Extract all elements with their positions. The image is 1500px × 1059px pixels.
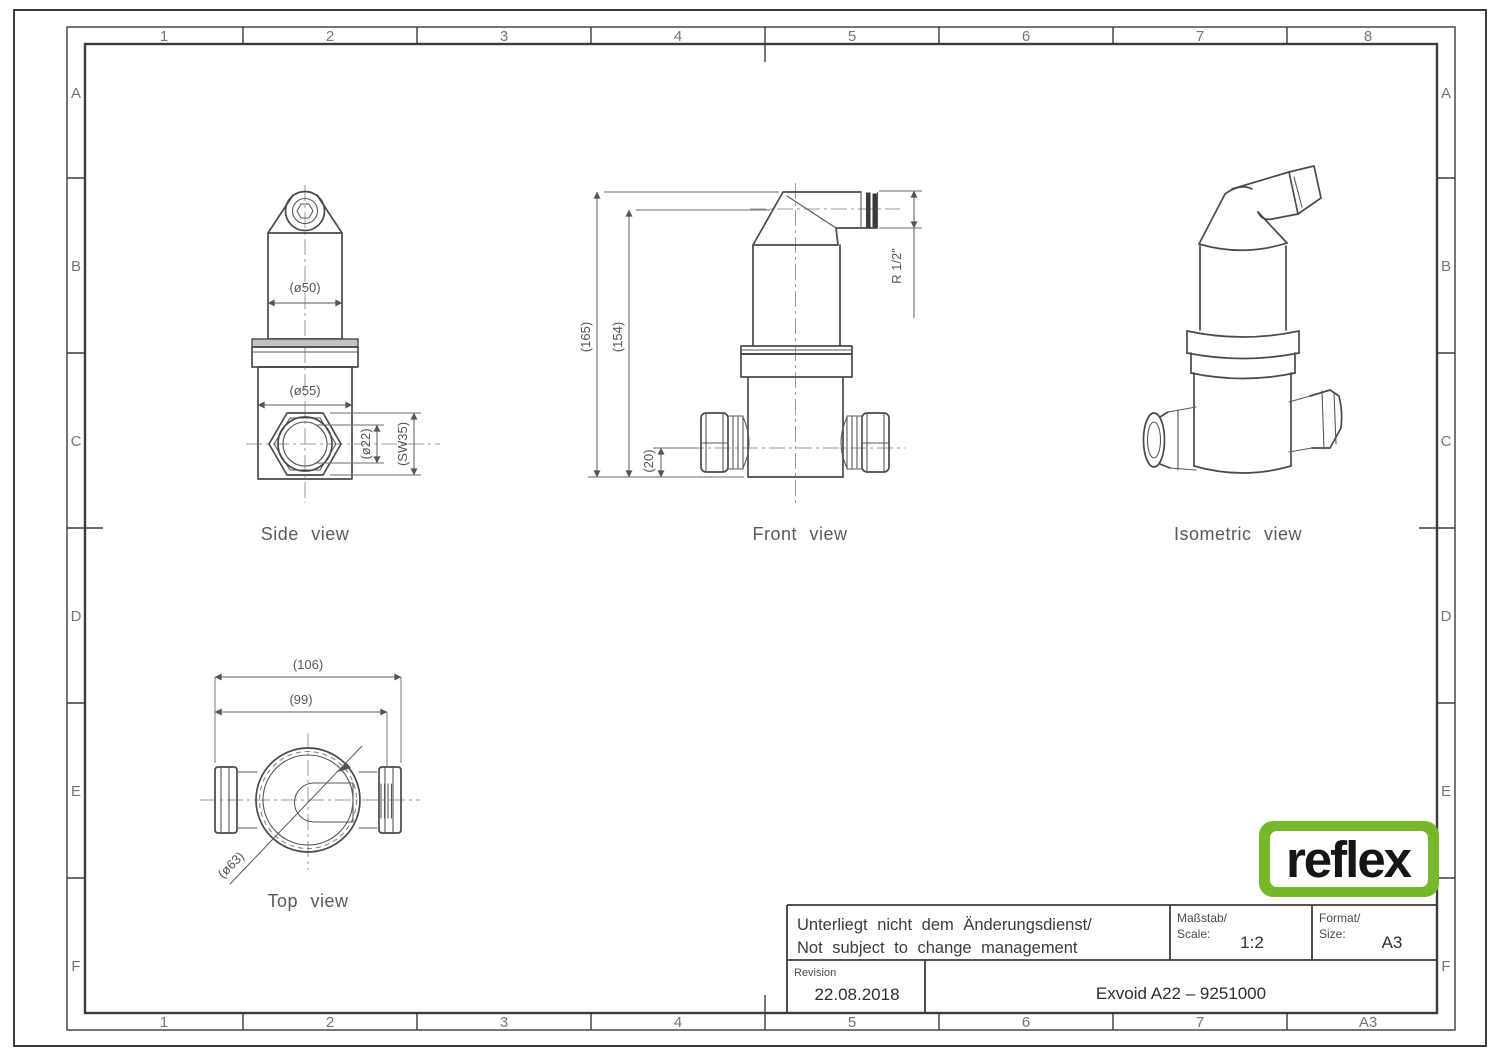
engineering-drawing: 1 2 3 4 5 6 7 8 1 2 3 4 5 6 7 A3 A B C D… [0, 0, 1500, 1059]
isometric-view-caption: Isometric view [1174, 524, 1303, 544]
grid-row-label: E [71, 783, 81, 800]
grid-col-label: 7 [1196, 1014, 1204, 1031]
top-view-caption: Top view [267, 891, 349, 911]
scale-value: 1:2 [1240, 933, 1264, 952]
scale-label-de: Maßstab/ [1177, 911, 1228, 925]
grid-row-label: D [71, 608, 82, 625]
front-view-caption: Front view [752, 524, 848, 544]
dim-label-99: (99) [289, 692, 312, 707]
grid-row-label: F [1441, 958, 1450, 975]
grid-col-label: 3 [500, 1014, 508, 1031]
grid-col-label: 4 [674, 28, 682, 45]
format-label-de: Format/ [1319, 911, 1361, 925]
grid-col-label: 8 [1364, 28, 1372, 45]
dim-label-r-half-inch: R 1/2" [889, 248, 904, 284]
title-block-note-en: Not subject to change management [797, 939, 1078, 957]
format-label-en: Size: [1319, 927, 1346, 941]
grid-row-label: B [1441, 258, 1451, 275]
reflex-logo: reflex [1259, 821, 1439, 897]
dim-label-20: (20) [641, 449, 656, 472]
dim-label-154: (154) [610, 322, 625, 352]
side-view-caption: Side view [261, 524, 350, 544]
grid-col-label: 2 [326, 1014, 334, 1031]
grid-row-label: E [1441, 783, 1451, 800]
revision-label: Revision [794, 967, 836, 979]
format-value: A3 [1382, 933, 1403, 952]
grid-col-label: 7 [1196, 28, 1204, 45]
grid-col-label: 6 [1022, 1014, 1030, 1031]
grid-row-label: C [1441, 433, 1452, 450]
dim-label-d22: (ø22) [358, 428, 373, 459]
logo-wordmark: reflex [1286, 831, 1412, 888]
grid-row-label: A [71, 85, 81, 102]
dim-label-sw35: (SW35) [395, 422, 410, 466]
isometric-view-drawing: Isometric view [1144, 166, 1342, 544]
grid-col-label: 4 [674, 1014, 682, 1031]
side-view-drawing: (ø50) (ø55) (ø22) (SW35) Side view [246, 185, 440, 544]
top-view-drawing: (106) (99) (ø63) Top view [200, 657, 420, 911]
grid-row-label: D [1441, 608, 1452, 625]
grid-col-label: 1 [160, 1014, 168, 1031]
dim-label-106: (106) [293, 657, 323, 672]
grid-col-label: 6 [1022, 28, 1030, 45]
grid-row-label: F [71, 958, 80, 975]
grid-row-label: A [1441, 85, 1451, 102]
scale-label-en: Scale: [1177, 927, 1210, 941]
grid-row-label: B [71, 258, 81, 275]
part-title: Exvoid A22 – 9251000 [1096, 984, 1266, 1003]
grid-col-label: 5 [848, 28, 856, 45]
dim-label-d50: (ø50) [289, 280, 320, 295]
grid-row-label: C [71, 433, 82, 450]
grid-col-label: 3 [500, 28, 508, 45]
front-view-drawing: (165) (154) (20) R 1/2" Front view [578, 183, 922, 544]
grid-col-label: 1 [160, 28, 168, 45]
title-block: Unterliegt nicht dem Änderungsdienst/ No… [787, 905, 1437, 1013]
dim-label-165: (165) [578, 322, 593, 352]
grid-col-label: A3 [1359, 1014, 1377, 1031]
title-block-note-de: Unterliegt nicht dem Änderungsdienst/ [797, 916, 1092, 934]
dim-label-d55: (ø55) [289, 383, 320, 398]
grid-col-label: 2 [326, 28, 334, 45]
grid-col-label: 5 [848, 1014, 856, 1031]
dim-label-d63: (ø63) [215, 849, 248, 882]
drawing-sheet: 1 2 3 4 5 6 7 8 1 2 3 4 5 6 7 A3 A B C D… [0, 0, 1500, 1059]
revision-value: 22.08.2018 [814, 985, 899, 1004]
